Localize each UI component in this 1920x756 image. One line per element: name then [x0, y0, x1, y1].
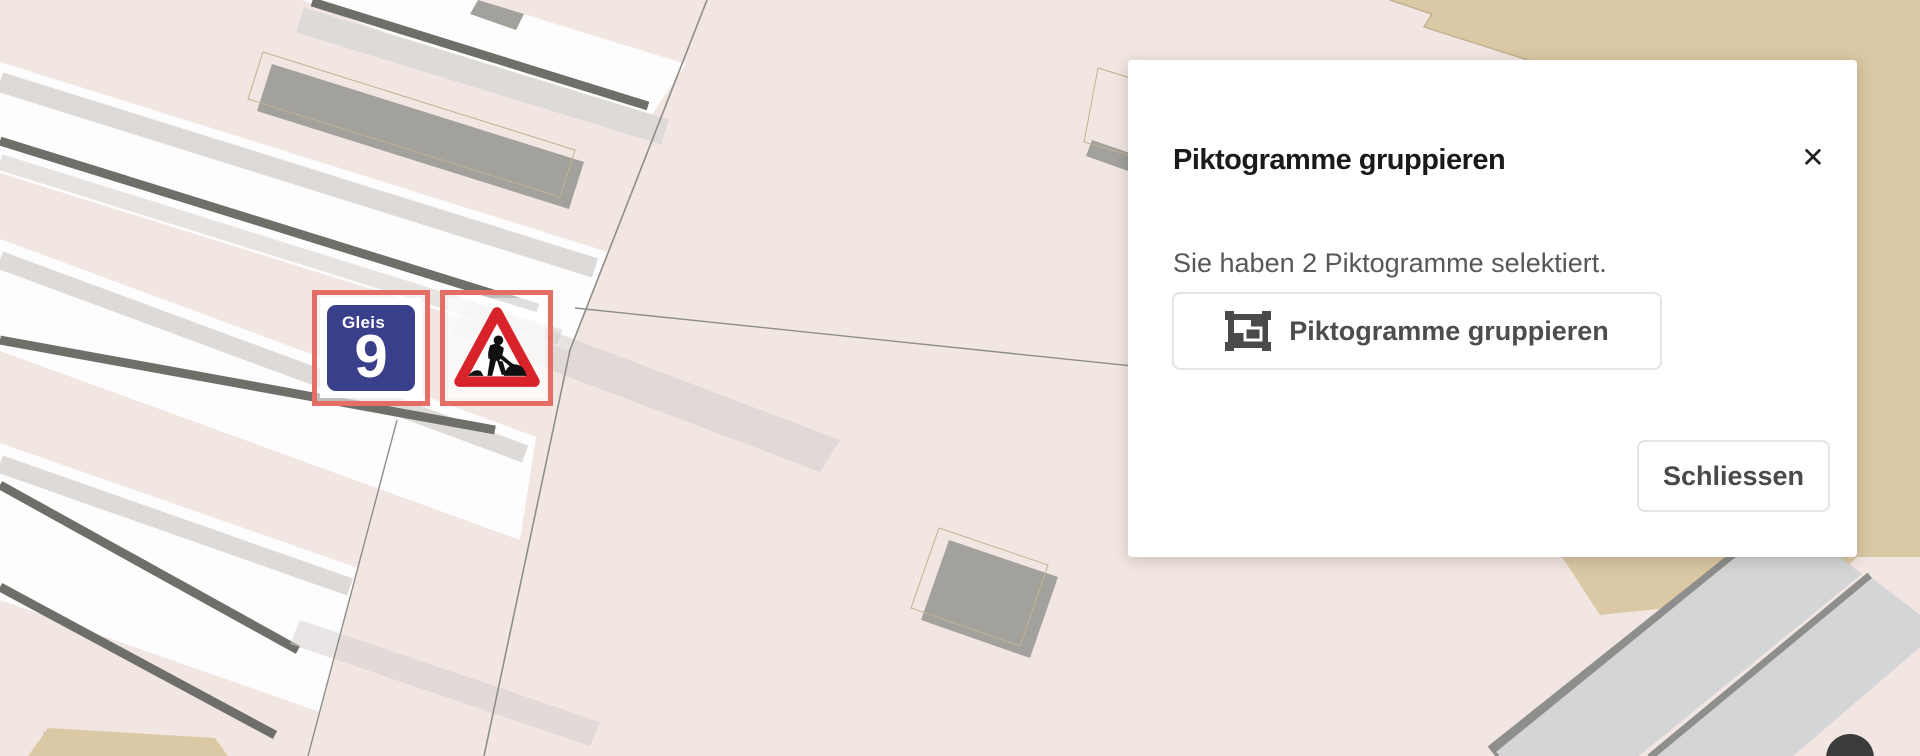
group-pictograms-button-label: Piktogramme gruppieren	[1289, 316, 1609, 347]
group-pictograms-button[interactable]: Piktogramme gruppieren	[1172, 292, 1662, 370]
platform-sign-background: Gleis 9	[320, 298, 422, 398]
construction-warning-icon	[449, 300, 545, 396]
group-pictograms-dialog: Piktogramme gruppieren ✕ Sie haben 2 Pik…	[1128, 60, 1857, 557]
pictogram-construction-sign[interactable]	[440, 290, 553, 406]
close-icon[interactable]: ✕	[1795, 140, 1831, 176]
dialog-title: Piktogramme gruppieren	[1173, 144, 1505, 177]
map-editor-stage: Gleis 9 Piktogramme	[0, 0, 1920, 756]
close-button[interactable]: Schliessen	[1637, 440, 1830, 512]
selection-summary: Sie haben 2 Piktogramme selektiert.	[1173, 248, 1607, 279]
platform-sign: Gleis 9	[327, 305, 415, 391]
pictogram-platform-gleis-9[interactable]: Gleis 9	[312, 290, 430, 406]
group-pictograms-icon	[1225, 311, 1271, 351]
platform-sign-number: 9	[327, 329, 415, 384]
construction-sign	[448, 298, 545, 398]
